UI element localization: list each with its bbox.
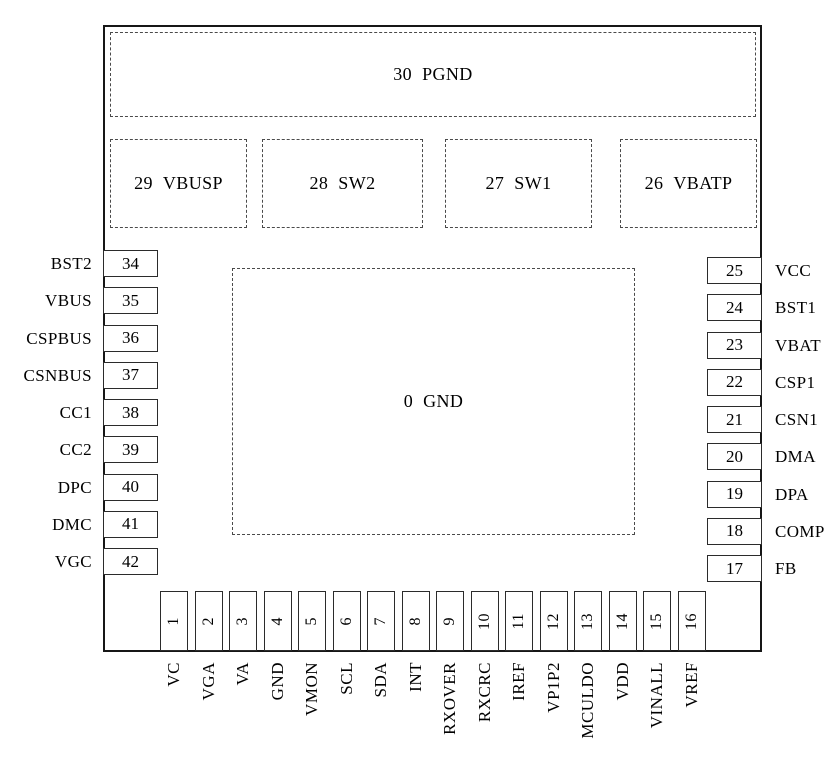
pin-number-box: 35: [103, 287, 158, 314]
pin-name-label: SCL: [337, 662, 357, 695]
pin-number-box: 39: [103, 436, 158, 463]
pin-number-box: 41: [103, 511, 158, 538]
pin-label-cell: SCL: [333, 662, 361, 695]
pin-number-box: 12: [540, 591, 568, 651]
pin-label-cell: IREF: [505, 662, 533, 701]
pin-label-cell: GND: [264, 662, 292, 700]
pin-number-box: 20: [707, 443, 762, 470]
pad-name: PGND: [422, 64, 473, 85]
pinout-diagram: 30 PGND 29 VBUSP 28 SW2 27 SW1 26 VBATP …: [0, 0, 840, 760]
pin-number-box: 3: [229, 591, 257, 651]
pin-number-box: 38: [103, 399, 158, 426]
pin-row: VGC 42: [0, 548, 158, 575]
pin-name-label: SDA: [371, 662, 391, 698]
pin-number-box: 8: [402, 591, 430, 651]
pin-name-label: BST2: [0, 250, 92, 277]
pad-number: 26: [645, 173, 664, 194]
pin-number-box: 13: [574, 591, 602, 651]
pin-row: 17 FB: [707, 555, 825, 582]
pin-name-label: MCULDO: [578, 662, 598, 739]
bottom-pin-row: 1 2 3 4 5 6 7 8 9 10 11 12 13 14 15 16: [160, 591, 706, 651]
pin-row: BST2 34: [0, 250, 158, 277]
pin-name-label: CC2: [0, 436, 92, 463]
pin-label-cell: VP1P2: [540, 662, 568, 713]
right-pin-column: 25 VCC 24 BST1 23 VBAT 22 CSP1 21 CSN1 2…: [707, 257, 825, 582]
pin-number-box: 15: [643, 591, 671, 651]
pin-name-label: VMON: [302, 662, 322, 716]
pad-sw1: 27 SW1: [445, 139, 592, 228]
pin-label-cell: SDA: [367, 662, 395, 698]
pin-number: 3: [234, 617, 252, 626]
pin-row: DPC 40: [0, 474, 158, 501]
pin-number-box: 5: [298, 591, 326, 651]
pin-row: 19 DPA: [707, 481, 825, 508]
pin-name-label: VREF: [682, 662, 702, 707]
pin-number-box: 9: [436, 591, 464, 651]
pin-name-label: VBUS: [0, 287, 92, 314]
pin-number-box: 25: [707, 257, 762, 284]
pin-label-cell: VC: [160, 662, 188, 687]
pin-name-label: VGA: [199, 662, 219, 700]
pin-number: 7: [372, 617, 390, 626]
pin-name-label: BST1: [775, 294, 816, 321]
pin-number: 4: [269, 617, 287, 626]
pin-number-box: 34: [103, 250, 158, 277]
pin-number-box: 19: [707, 481, 762, 508]
pin-name-label: CSP1: [775, 369, 815, 396]
pin-name-label: CSN1: [775, 406, 818, 433]
pin-number-box: 36: [103, 325, 158, 352]
pin-number: 15: [648, 613, 666, 630]
pin-number-box: 2: [195, 591, 223, 651]
pin-number: 14: [614, 613, 632, 630]
pin-number: 12: [545, 613, 563, 630]
pin-row: 24 BST1: [707, 294, 825, 321]
pad-number: 0: [404, 391, 413, 412]
pin-label-cell: VA: [229, 662, 257, 685]
pin-number: 16: [683, 613, 701, 630]
pin-name-label: VCC: [775, 257, 811, 284]
pin-number-box: 4: [264, 591, 292, 651]
pin-name-label: INT: [406, 662, 426, 692]
pin-name-label: COMP: [775, 518, 825, 545]
pin-name-label: CSNBUS: [0, 362, 92, 389]
pad-gnd: 0 GND: [232, 268, 635, 535]
pin-number-box: 37: [103, 362, 158, 389]
pin-label-cell: RXCRC: [471, 662, 499, 722]
pin-number: 11: [510, 613, 528, 629]
pin-number-box: 1: [160, 591, 188, 651]
bottom-pin-labels: VC VGA VA GND VMON SCL SDA INT RXOVER RX…: [160, 662, 706, 739]
pin-name-label: RXCRC: [475, 662, 495, 722]
pin-label-cell: VDD: [609, 662, 637, 700]
pin-number-box: 10: [471, 591, 499, 651]
pin-label-cell: VMON: [298, 662, 326, 716]
pin-number-box: 21: [707, 406, 762, 433]
pin-row: 23 VBAT: [707, 332, 825, 359]
pin-number: 1: [165, 617, 183, 626]
left-pin-column: BST2 34 VBUS 35 CSPBUS 36 CSNBUS 37 CC1 …: [0, 250, 158, 575]
pad-vbusp: 29 VBUSP: [110, 139, 247, 228]
pin-number-box: 16: [678, 591, 706, 651]
pin-row: 20 DMA: [707, 443, 825, 470]
pin-name-label: VINALL: [647, 662, 667, 728]
pin-number-box: 17: [707, 555, 762, 582]
pad-name: VBATP: [673, 173, 732, 194]
pin-name-label: DMC: [0, 511, 92, 538]
pin-number-box: 18: [707, 518, 762, 545]
pin-number-box: 11: [505, 591, 533, 651]
pin-name-label: CC1: [0, 399, 92, 426]
pin-number: 2: [200, 617, 218, 626]
pin-number: 5: [303, 617, 321, 626]
pad-name: GND: [423, 391, 463, 412]
pin-number-box: 40: [103, 474, 158, 501]
pin-row: 25 VCC: [707, 257, 825, 284]
pin-row: 22 CSP1: [707, 369, 825, 396]
pin-number: 10: [476, 613, 494, 630]
pin-name-label: VA: [233, 662, 253, 685]
pin-label-cell: INT: [402, 662, 430, 692]
pin-name-label: DMA: [775, 443, 816, 470]
pin-name-label: VBAT: [775, 332, 821, 359]
pin-row: CSPBUS 36: [0, 325, 158, 352]
pin-row: CSNBUS 37: [0, 362, 158, 389]
pin-number-box: 7: [367, 591, 395, 651]
pin-number-box: 42: [103, 548, 158, 575]
pin-number: 6: [338, 617, 356, 626]
pin-label-cell: VGA: [195, 662, 223, 700]
pin-name-label: RXOVER: [440, 662, 460, 735]
pad-name: SW1: [514, 173, 551, 194]
pin-row: VBUS 35: [0, 287, 158, 314]
pin-name-label: VP1P2: [544, 662, 564, 713]
pad-number: 29: [134, 173, 153, 194]
pin-label-cell: RXOVER: [436, 662, 464, 735]
pin-row: CC1 38: [0, 399, 158, 426]
pin-row: 21 CSN1: [707, 406, 825, 433]
pin-name-label: VC: [164, 662, 184, 687]
pin-number: 9: [441, 617, 459, 626]
pin-row: 18 COMP: [707, 518, 825, 545]
pin-row: CC2 39: [0, 436, 158, 463]
pin-number-box: 14: [609, 591, 637, 651]
pad-name: SW2: [338, 173, 375, 194]
pin-number-box: 22: [707, 369, 762, 396]
pin-label-cell: VINALL: [643, 662, 671, 728]
pad-number: 30: [393, 64, 412, 85]
pin-name-label: VGC: [0, 548, 92, 575]
pad-sw2: 28 SW2: [262, 139, 423, 228]
pin-name-label: DPC: [0, 474, 92, 501]
pin-label-cell: VREF: [678, 662, 706, 707]
pad-vbatp: 26 VBATP: [620, 139, 757, 228]
pad-number: 28: [309, 173, 328, 194]
pin-number-box: 23: [707, 332, 762, 359]
pin-label-cell: MCULDO: [574, 662, 602, 739]
pin-name-label: VDD: [613, 662, 633, 700]
pin-row: DMC 41: [0, 511, 158, 538]
pin-number: 13: [579, 613, 597, 630]
pin-name-label: GND: [268, 662, 288, 700]
pad-number: 27: [485, 173, 504, 194]
pin-name-label: CSPBUS: [0, 325, 92, 352]
pin-name-label: DPA: [775, 481, 809, 508]
pin-number: 8: [407, 617, 425, 626]
pin-name-label: IREF: [509, 662, 529, 701]
pin-number-box: 6: [333, 591, 361, 651]
pad-name: VBUSP: [163, 173, 223, 194]
pin-name-label: FB: [775, 555, 797, 582]
pin-number-box: 24: [707, 294, 762, 321]
pad-pgnd: 30 PGND: [110, 32, 756, 117]
